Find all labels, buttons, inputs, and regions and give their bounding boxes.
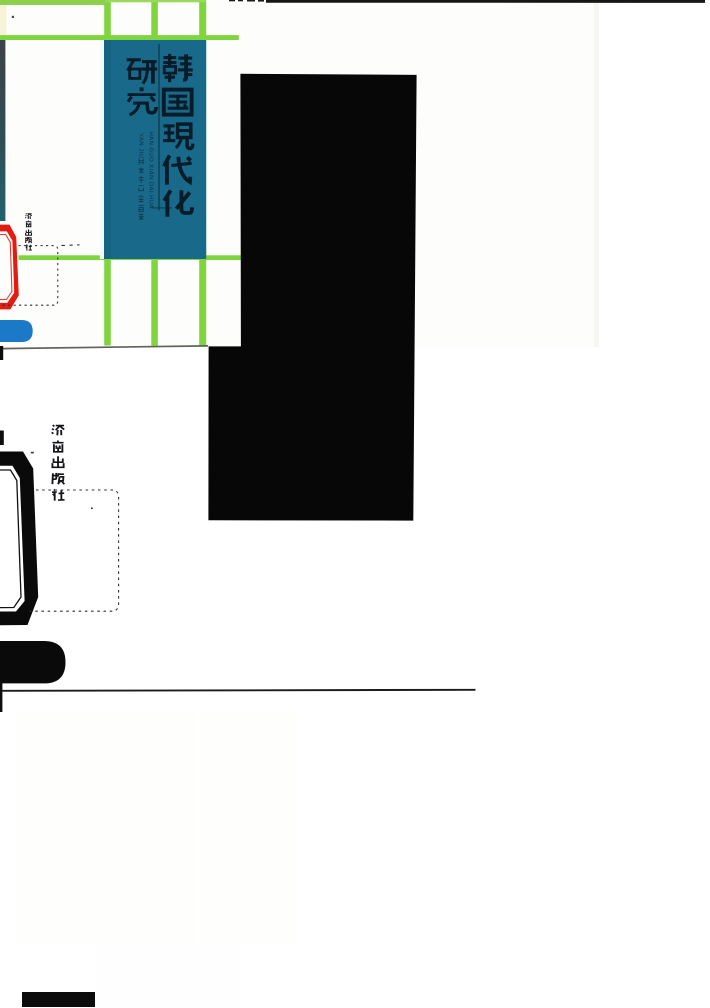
svg-text:YAN JIU: YAN JIU	[137, 133, 143, 158]
svg-text:HAN GUO XIAN DAI HUA: HAN GUO XIAN DAI HUA	[147, 132, 153, 209]
